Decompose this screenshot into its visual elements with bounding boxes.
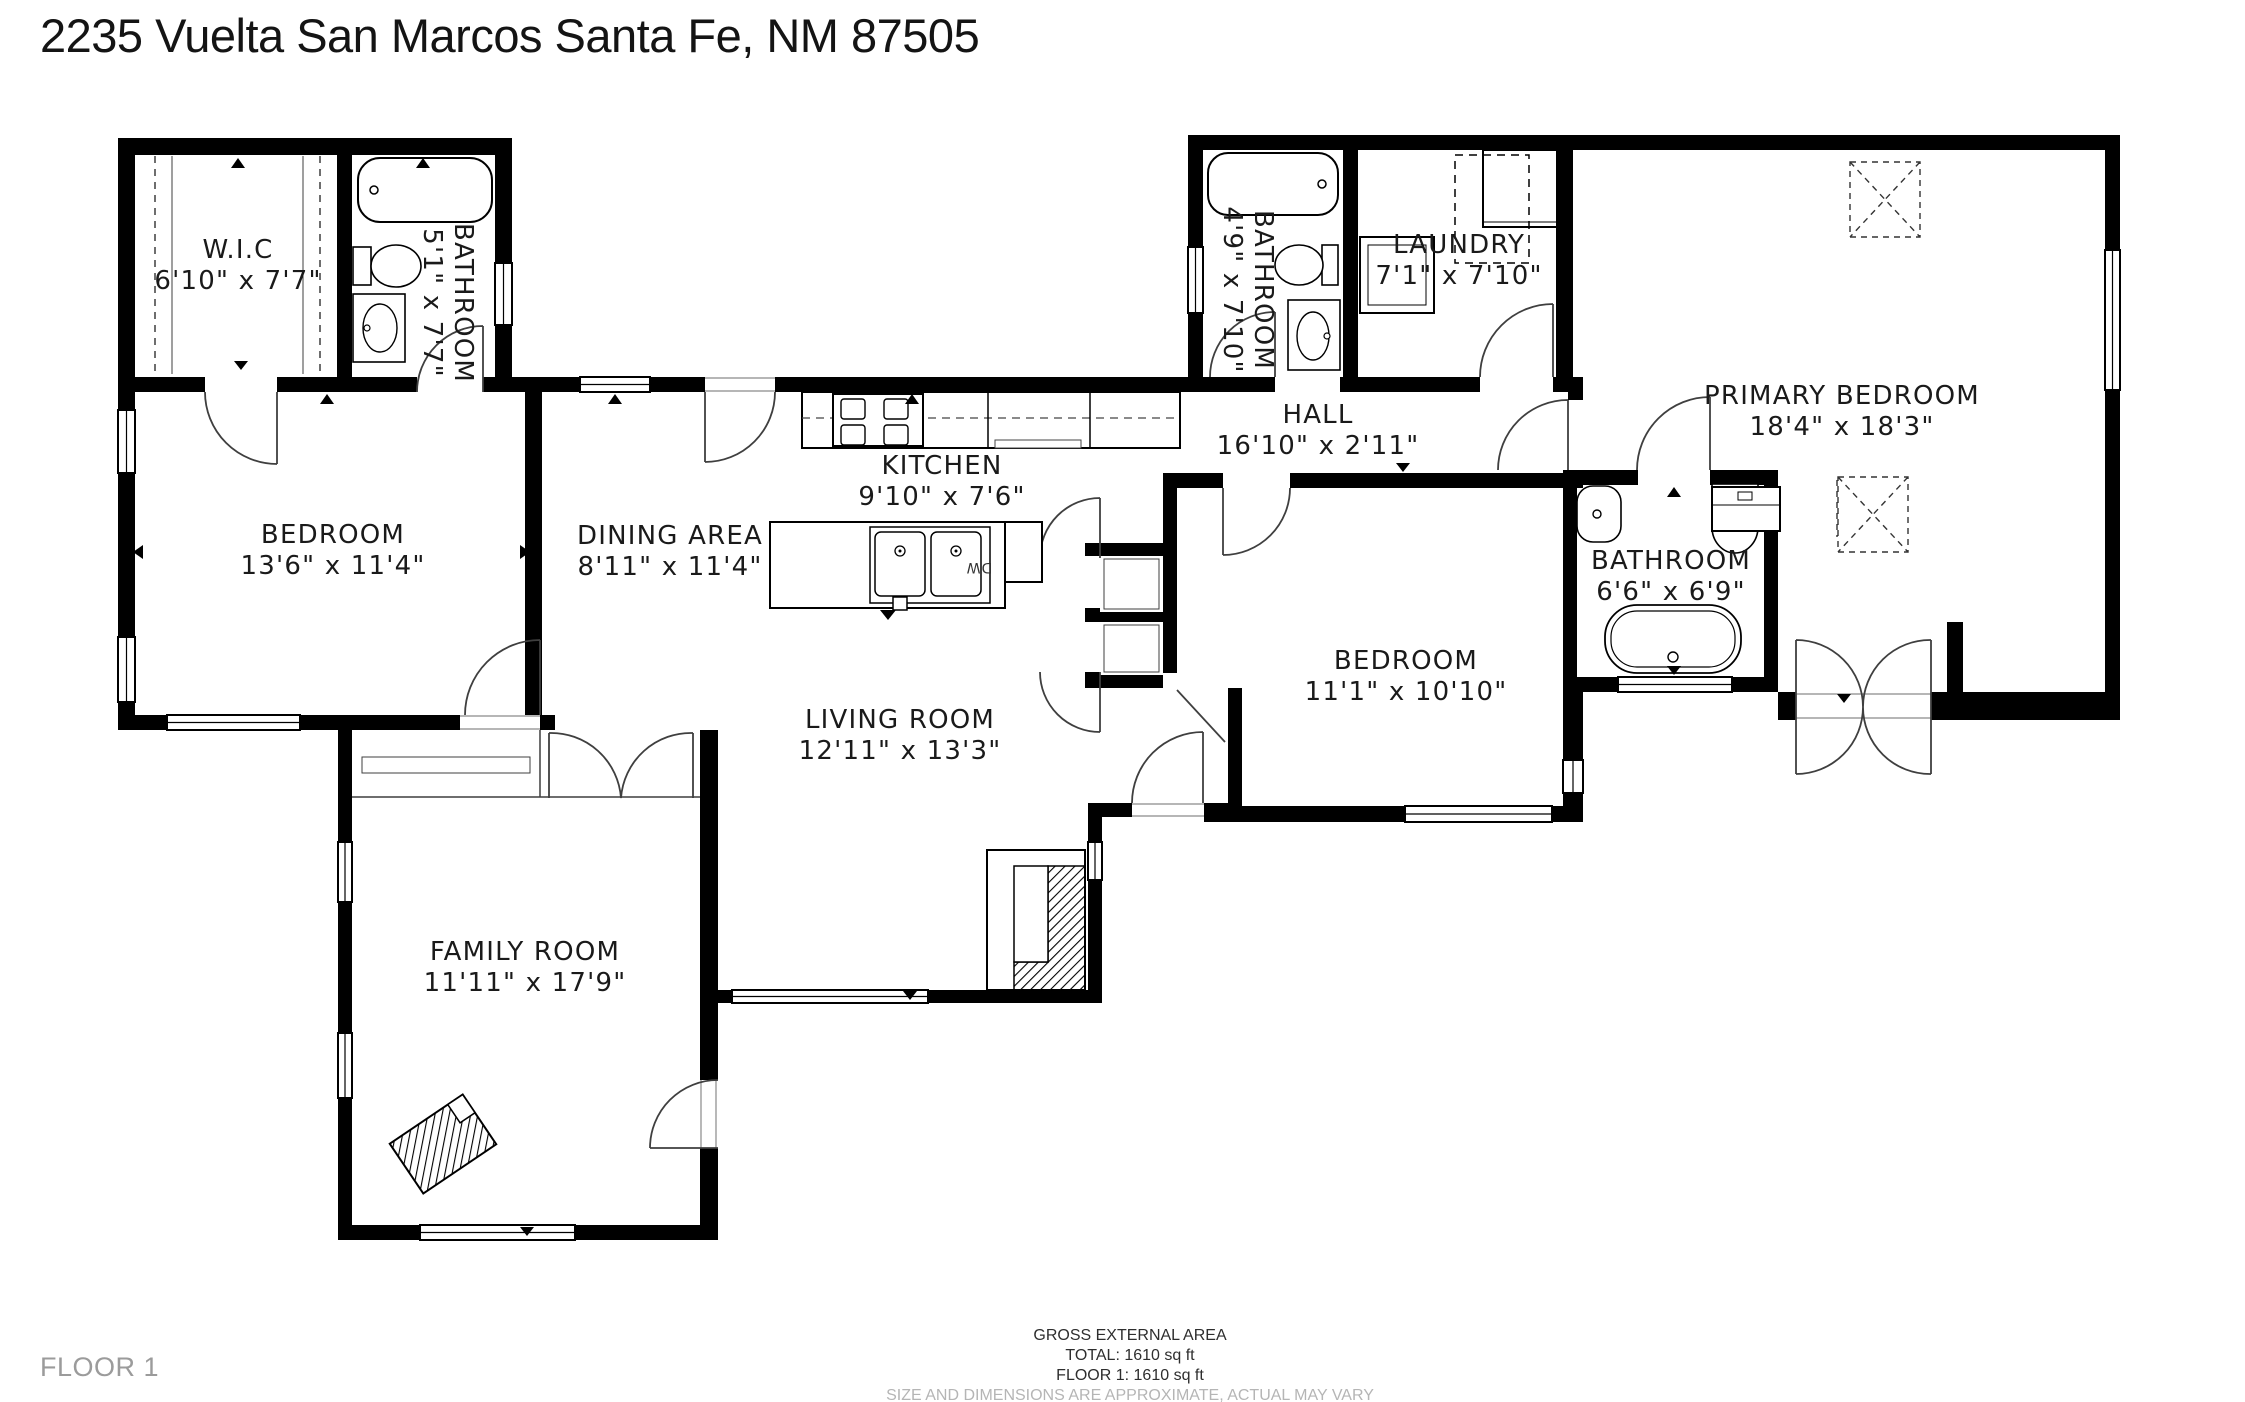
floorplan-page: 2235 Vuelta San Marcos Santa Fe, NM 8750… (0, 0, 2245, 1402)
room-label-bedroom-1: BEDROOM 13'6" x 11'4" (241, 520, 426, 582)
dishwasher-label: DW (966, 559, 993, 575)
gross-area-title: GROSS EXTERNAL AREA (886, 1326, 1374, 1346)
room-label-primary-bedroom: PRIMARY BEDROOM 18'4" x 18'3" (1704, 381, 1980, 443)
kitchen-island-icon (770, 522, 1042, 620)
floor-label: FLOOR 1 (40, 1352, 159, 1383)
toilet-icon (353, 245, 421, 287)
page-title: 2235 Vuelta San Marcos Santa Fe, NM 8750… (40, 8, 979, 63)
floorplan-drawing (0, 0, 2245, 1402)
thresholds (460, 378, 1931, 1148)
sink-icon (1288, 300, 1340, 370)
sink-icon (1577, 486, 1621, 542)
room-label-wic: W.I.C 6'10" x 7'7" (154, 235, 321, 297)
cabinet-icon (1483, 150, 1560, 227)
room-label-bathroom-2: BATHROOM 4'9" x 7'10" (1216, 206, 1278, 373)
skylight-icon (1838, 477, 1908, 552)
freestanding-tub-icon (1605, 605, 1741, 673)
toilet-icon (1275, 245, 1338, 285)
footer-notes: GROSS EXTERNAL AREA TOTAL: 1610 sq ft FL… (886, 1326, 1374, 1402)
fireplace-icon (987, 850, 1085, 990)
room-label-dining: DINING AREA 8'11" x 11'4" (577, 521, 763, 583)
floor1-area: FLOOR 1: 1610 sq ft (886, 1366, 1374, 1386)
room-label-bedroom-2: BEDROOM 11'1" x 10'10" (1305, 646, 1508, 708)
room-label-living: LIVING ROOM 12'11" x 13'3" (799, 705, 1002, 767)
wood-stove-icon (390, 1095, 497, 1194)
kitchen-counter (802, 392, 1180, 448)
total-area: TOTAL: 1610 sq ft (886, 1346, 1374, 1366)
room-label-family: FAMILY ROOM 11'11" x 17'9" (424, 937, 627, 999)
room-label-bathroom-3: BATHROOM 6'6" x 6'9" (1591, 546, 1751, 608)
skylight-icon (1850, 162, 1920, 237)
sink-icon (353, 294, 405, 362)
disclaimer: SIZE AND DIMENSIONS ARE APPROXIMATE, ACT… (886, 1386, 1374, 1402)
room-label-bathroom-1: BATHROOM 5'1" x 7'7" (416, 223, 478, 383)
dresser-icon (1712, 487, 1780, 531)
room-label-hall: HALL 16'10" x 2'11" (1217, 400, 1420, 462)
room-label-kitchen: KITCHEN 9'10" x 7'6" (858, 451, 1025, 513)
room-label-laundry: LAUNDRY 7'1" x 7'10" (1375, 230, 1542, 292)
